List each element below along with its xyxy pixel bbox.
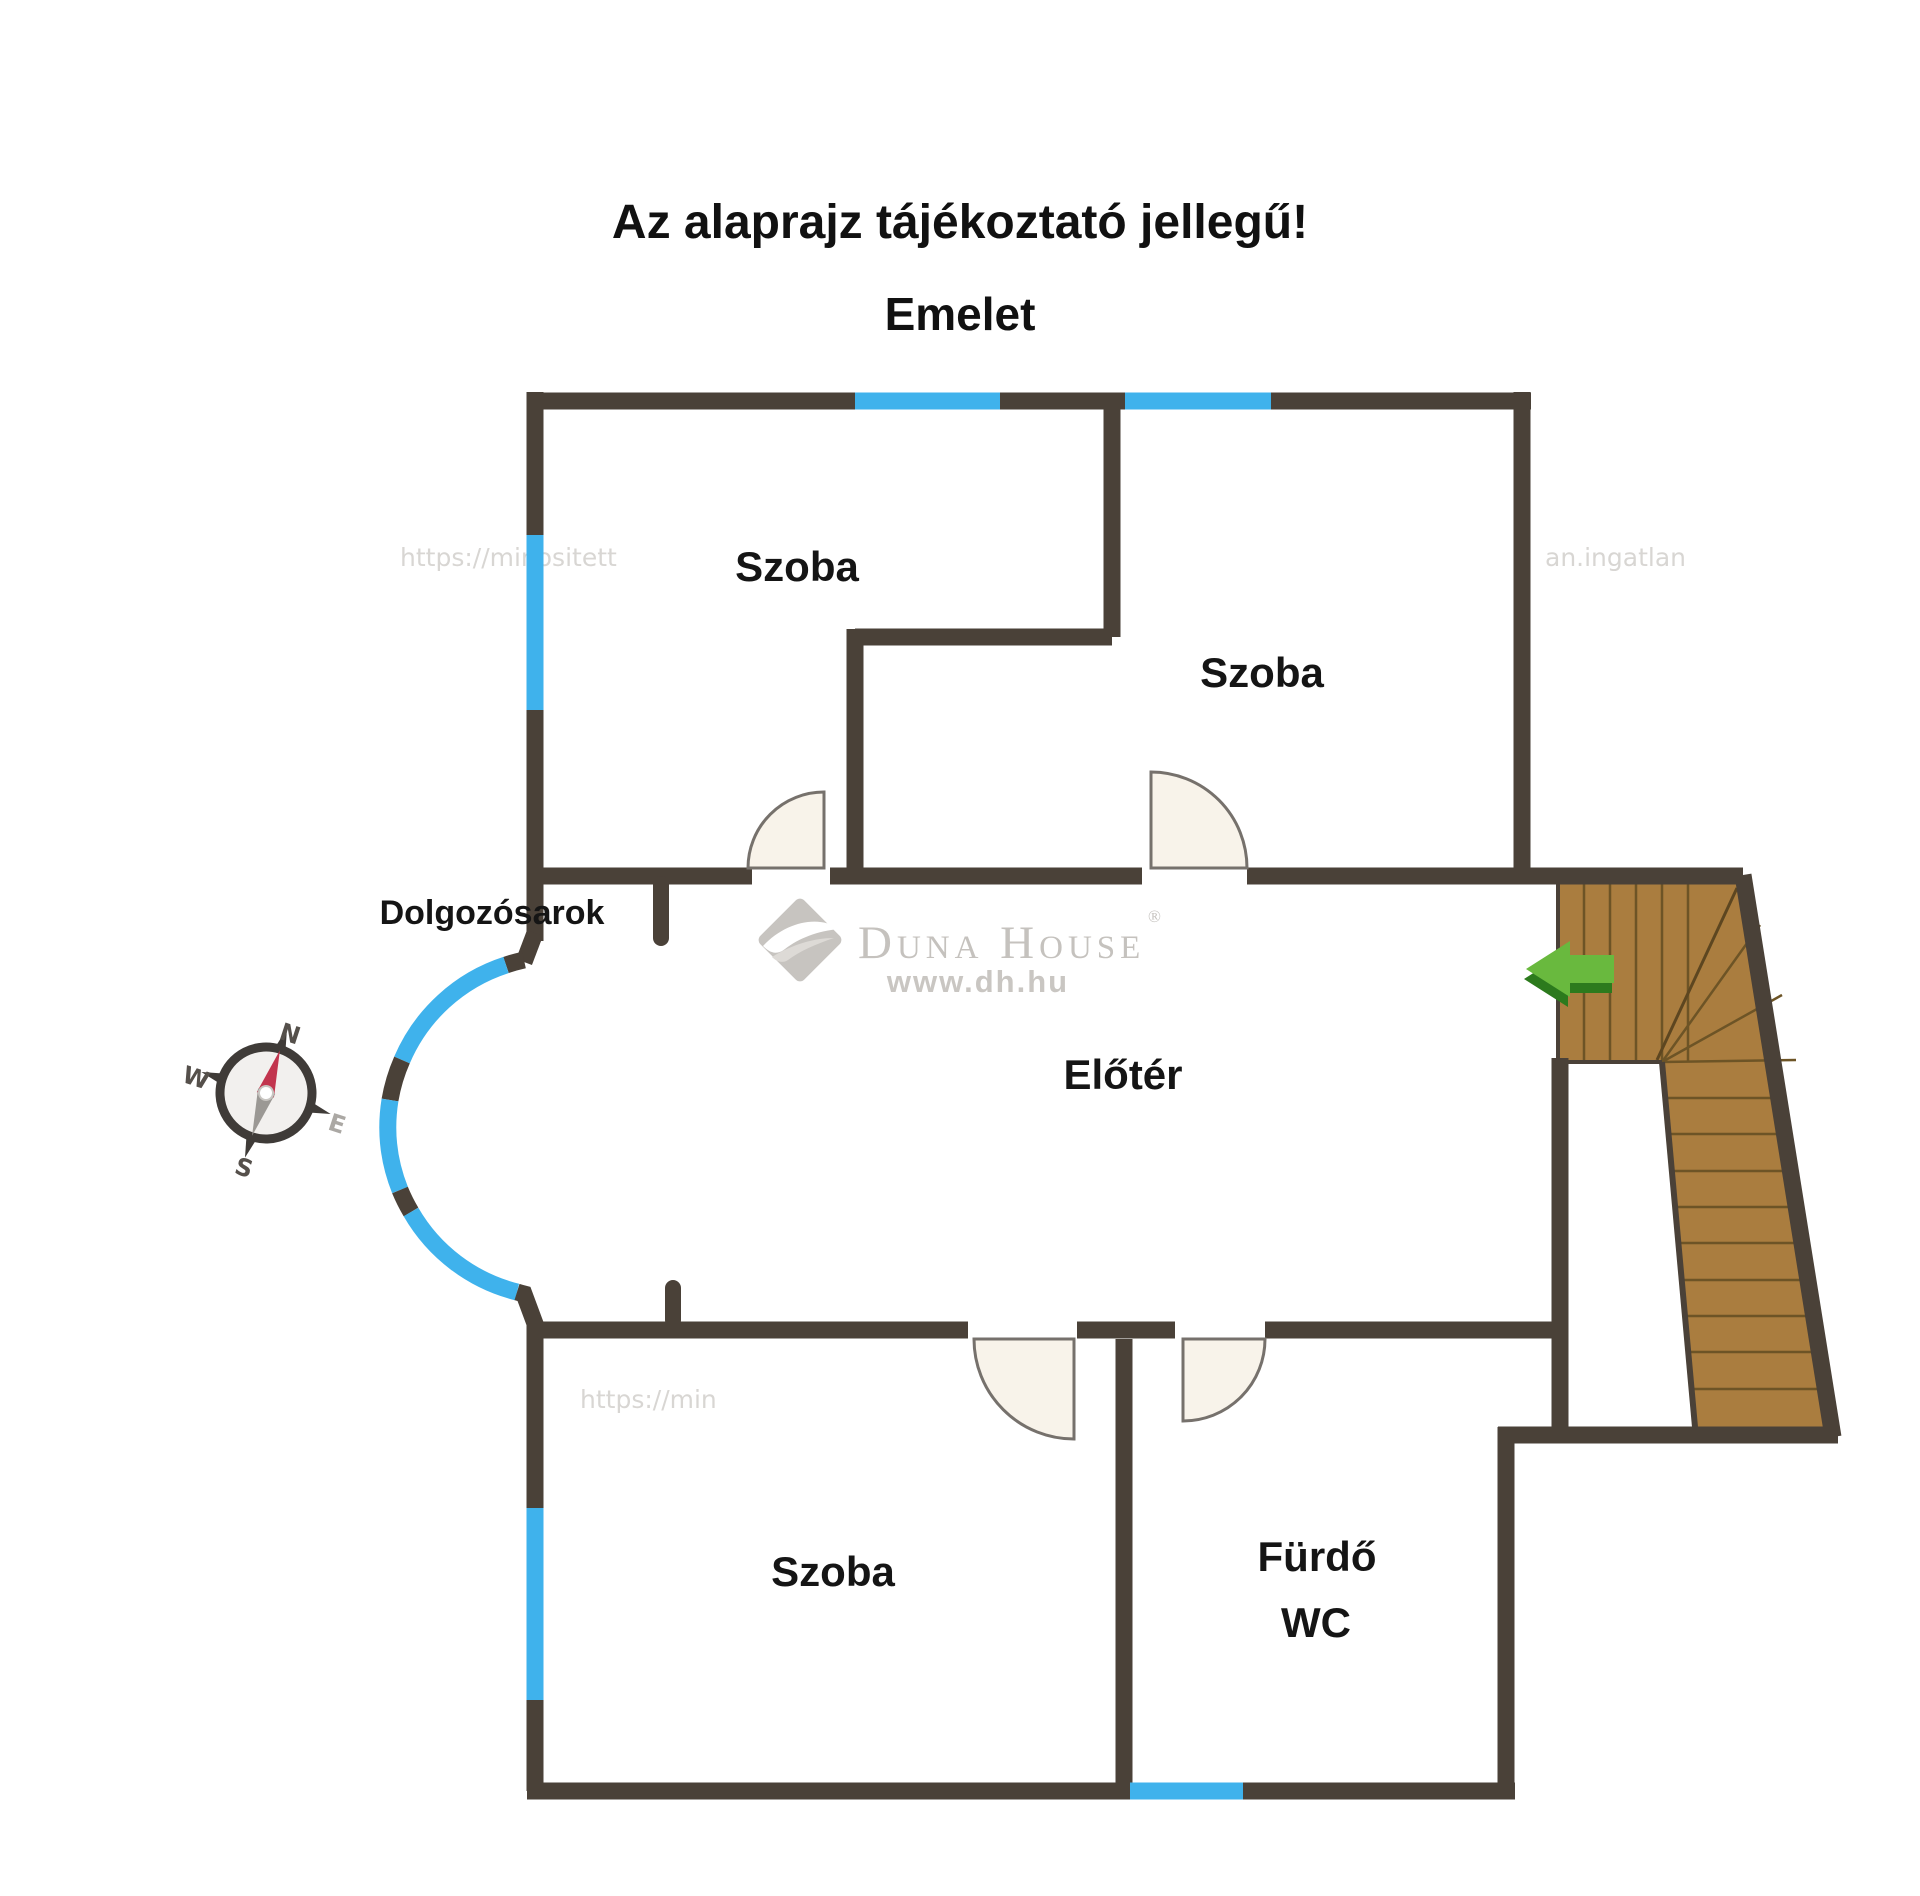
watermark-text: https://minositett [400, 543, 617, 572]
bay-chamfer-top [524, 933, 535, 962]
room-label-hall: Előtér [1063, 1051, 1182, 1098]
watermark-text: an.ingatlan [1545, 543, 1686, 572]
room-label-top-left: Szoba [735, 543, 859, 590]
plan-floor-subtitle: Emelet [885, 288, 1036, 340]
room-label-bathroom: Fürdő [1258, 1533, 1377, 1580]
logo-registered-mark: ® [1148, 907, 1161, 926]
logo-brand-text: Duna House [858, 917, 1145, 969]
room-label-work-corner: Dolgozósarok [380, 894, 605, 932]
bay-arc-dark-2 [400, 1190, 411, 1212]
floor-plan-canvas: https://minositett an.ingatlan https://m… [0, 0, 1920, 1896]
floor-plan-page: https://minositett an.ingatlan https://m… [0, 0, 1920, 1896]
logo-url-text: www.dh.hu [886, 964, 1069, 999]
room-label-top-right: Szoba [1200, 649, 1324, 696]
watermark-text: https://min [580, 1385, 717, 1414]
room-label-wc: WC [1281, 1599, 1351, 1646]
plan-disclaimer-title: Az alaprajz tájékoztató jellegű! [612, 196, 1308, 249]
bay-arc-dark-0 [506, 960, 524, 965]
room-label-bottom-left: Szoba [771, 1548, 895, 1595]
